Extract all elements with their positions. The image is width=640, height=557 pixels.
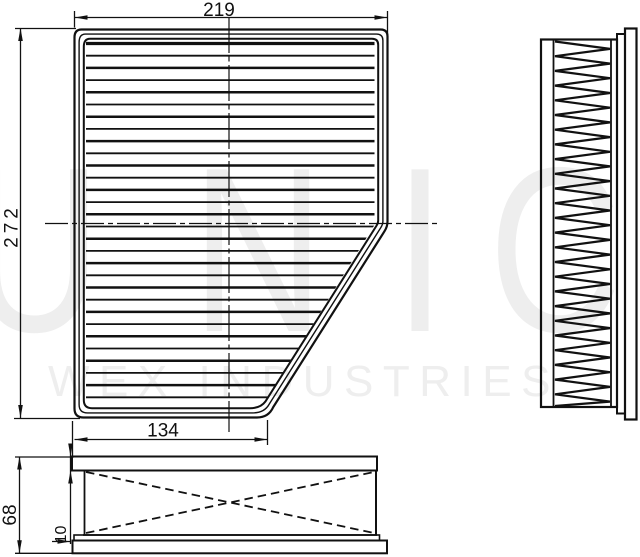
svg-text:WEX INDUSTRIES: WEX INDUSTRIES bbox=[48, 357, 560, 406]
svg-text:134: 134 bbox=[147, 421, 179, 442]
svg-text:I: I bbox=[395, 118, 446, 381]
svg-text:272: 272 bbox=[2, 204, 23, 248]
svg-text:U: U bbox=[0, 118, 101, 381]
svg-text:68: 68 bbox=[0, 504, 21, 525]
svg-text:219: 219 bbox=[203, 0, 235, 21]
svg-text:10: 10 bbox=[53, 526, 70, 544]
